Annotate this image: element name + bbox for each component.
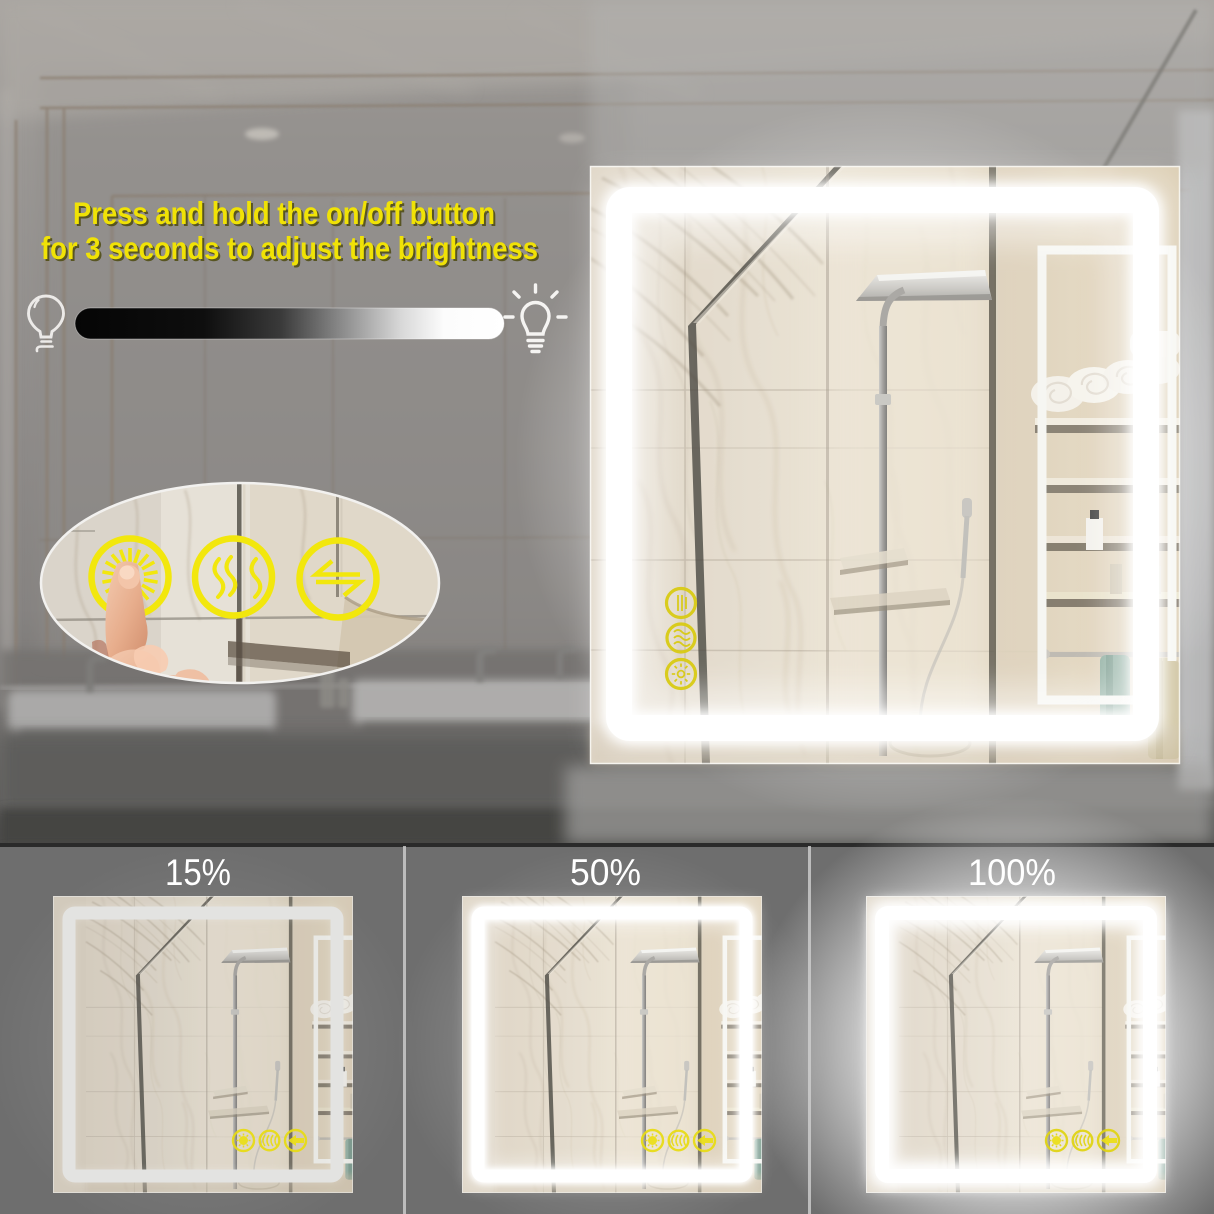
- svg-text:for 3 seconds to adjust the br: for 3 seconds to adjust the brightness: [41, 230, 538, 266]
- svg-text:100%: 100%: [968, 852, 1056, 893]
- svg-text:Press and hold the on/off butt: Press and hold the on/off button: [73, 195, 495, 231]
- svg-text:15%: 15%: [165, 852, 231, 893]
- svg-text:50%: 50%: [570, 852, 641, 893]
